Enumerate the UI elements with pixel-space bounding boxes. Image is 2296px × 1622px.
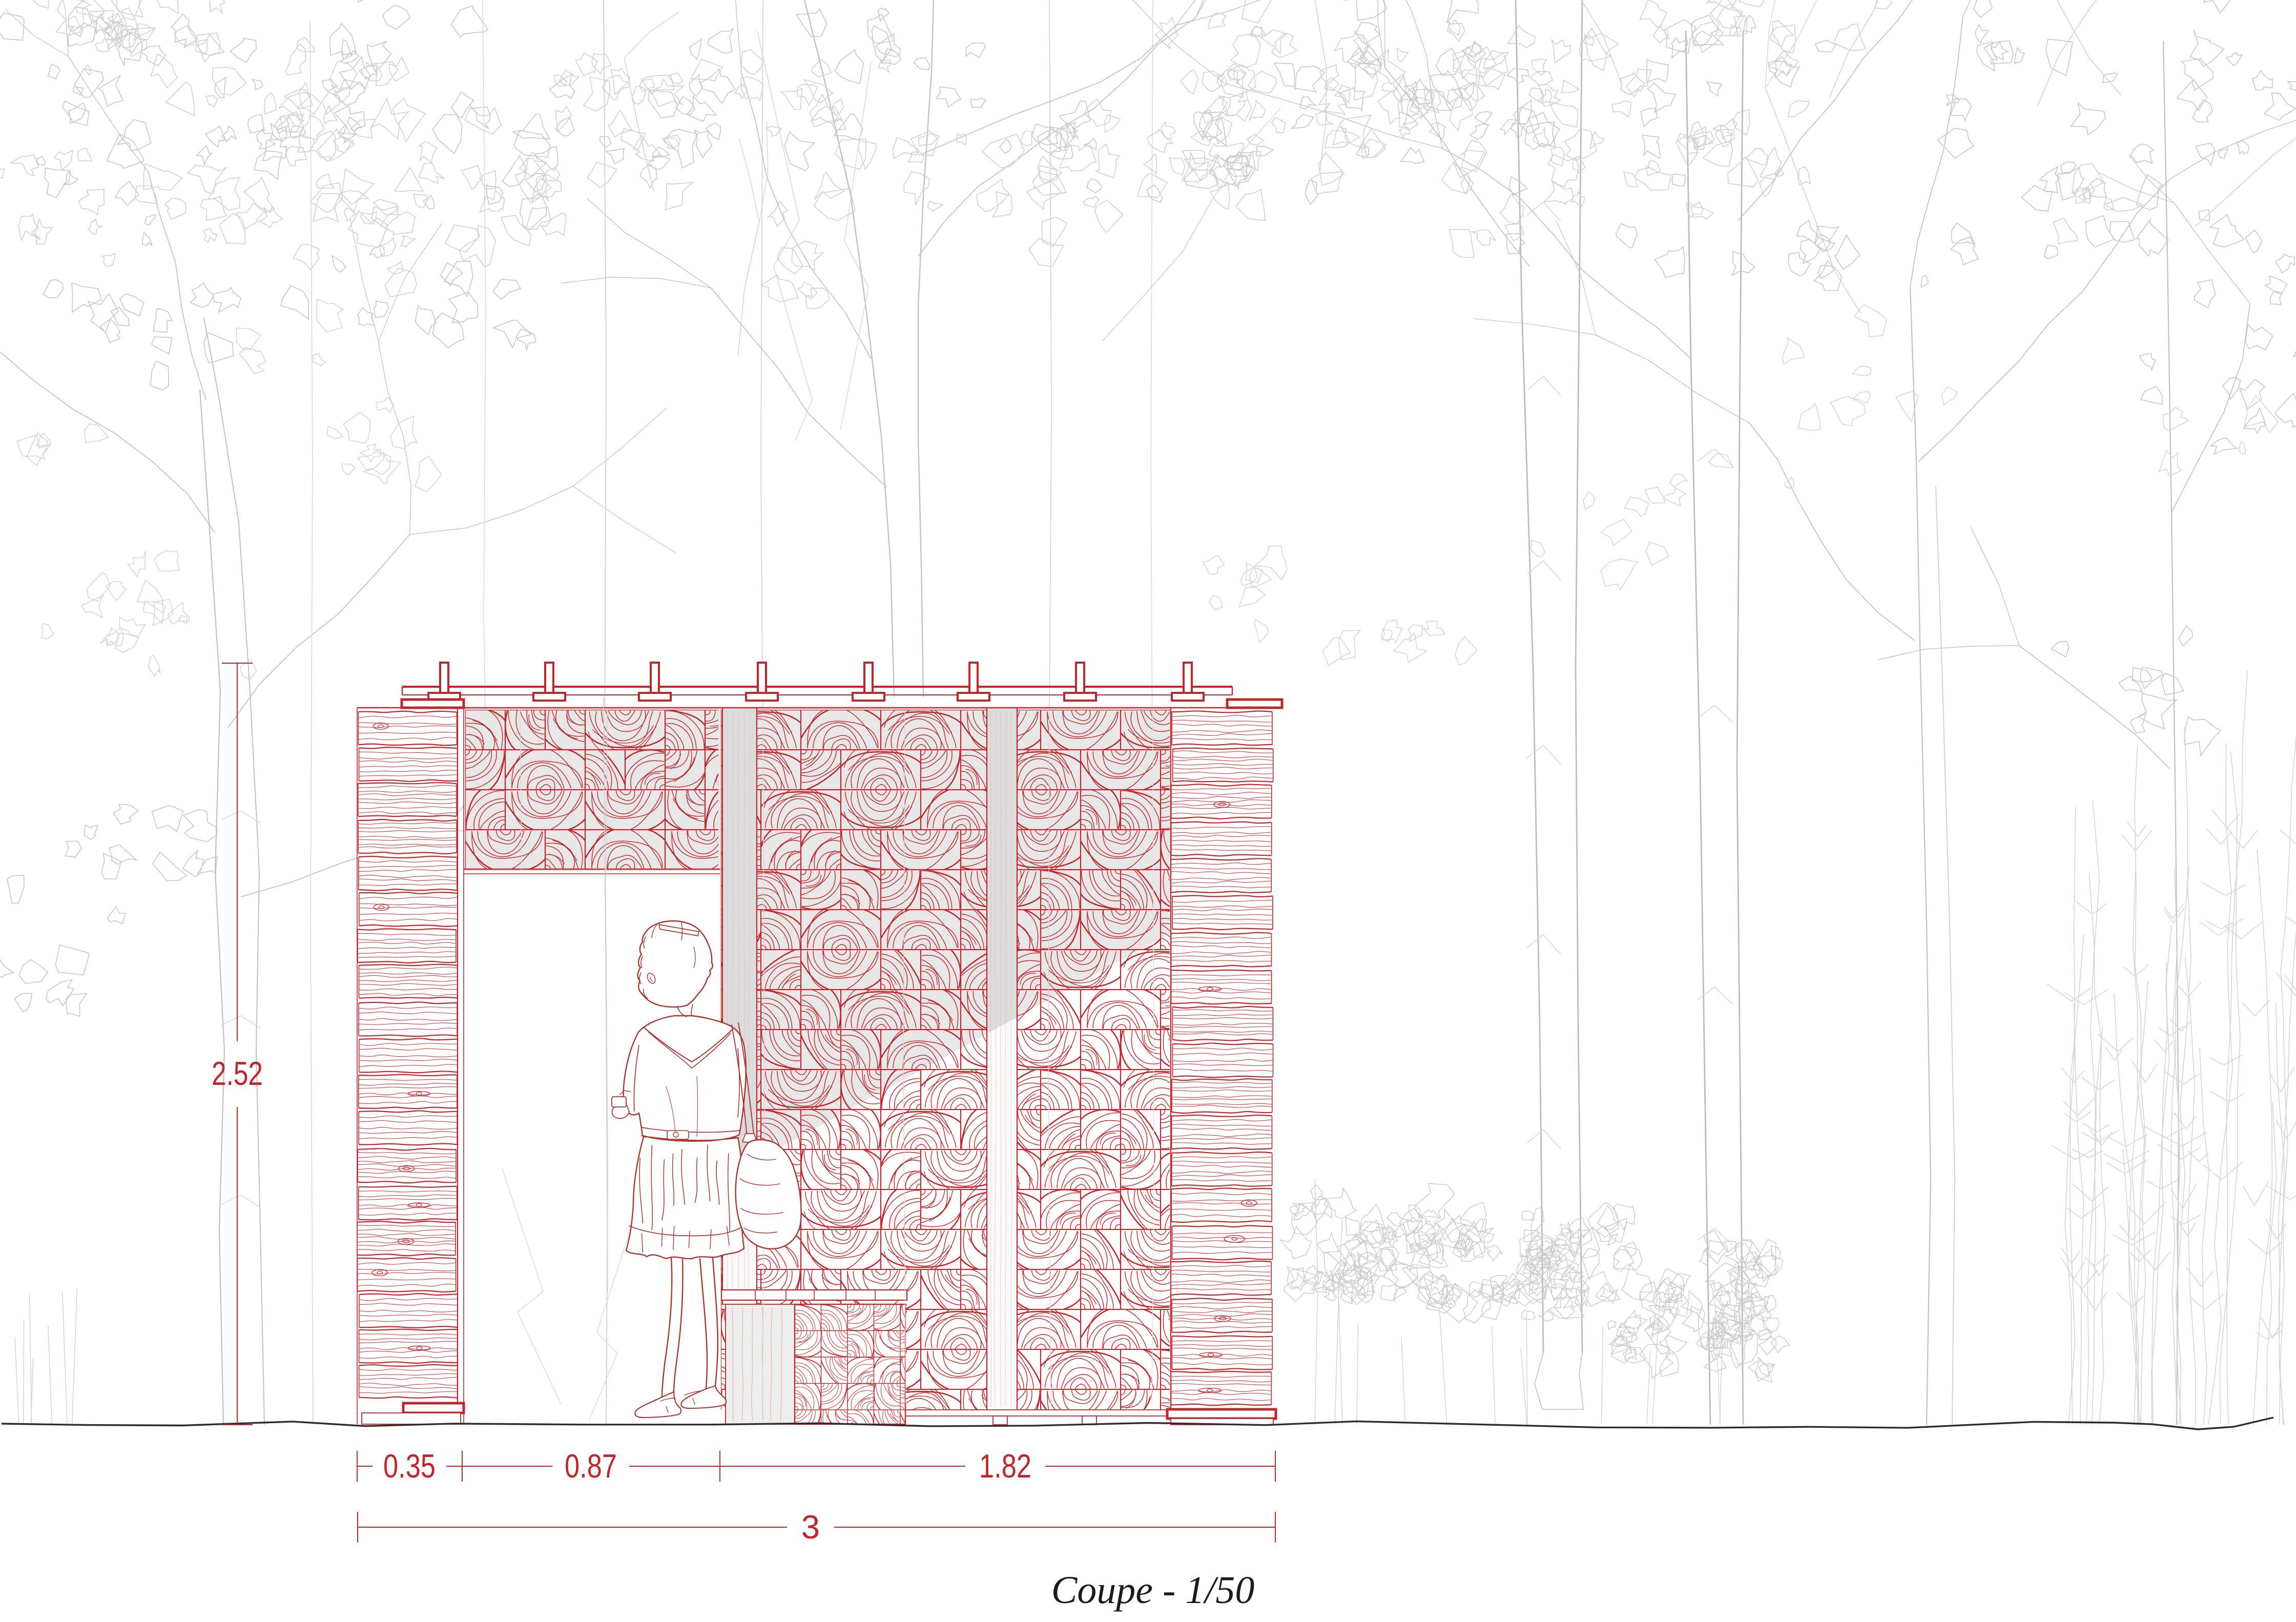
- svg-text:0.87: 0.87: [565, 1447, 617, 1485]
- svg-text:1.82: 1.82: [979, 1447, 1031, 1485]
- svg-text:0.35: 0.35: [383, 1447, 436, 1485]
- svg-text:2.52: 2.52: [212, 1055, 263, 1092]
- svg-text:3: 3: [801, 1508, 820, 1546]
- svg-text:Coupe - 1/50: Coupe - 1/50: [1051, 1569, 1255, 1612]
